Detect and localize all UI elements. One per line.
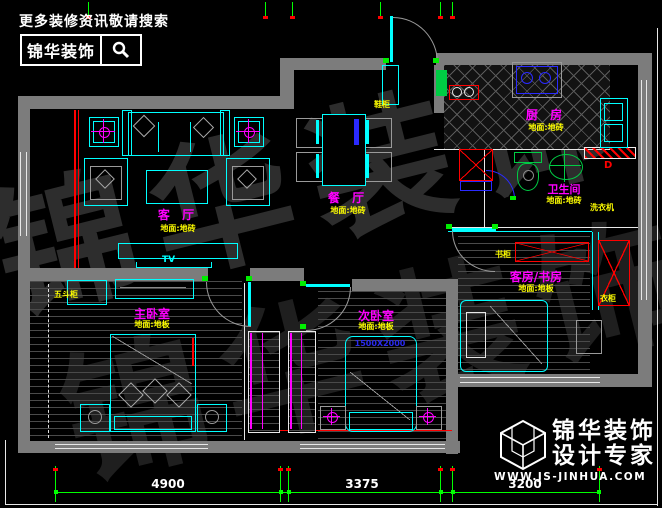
dimension-extension xyxy=(452,466,453,502)
dimension-extension xyxy=(288,466,289,502)
wash-basin xyxy=(549,154,583,180)
dining-chair-accent xyxy=(366,154,369,178)
dimension-tick-mark xyxy=(263,16,268,19)
basin-circle xyxy=(464,87,474,97)
light-crosshair-icon xyxy=(327,412,338,423)
basin-circle xyxy=(452,87,462,97)
search-banner-tagline: 更多装修资讯敬请搜索 xyxy=(19,11,169,31)
search-banner-brand: 锦华装饰 xyxy=(22,38,100,62)
brand-logo-slogan: 设计专家 xyxy=(552,444,656,468)
search-banner-box: 锦华装饰 xyxy=(20,34,142,66)
sheet-border xyxy=(5,504,658,505)
sofa-arm xyxy=(220,110,230,156)
wardrobe-hanging xyxy=(288,331,316,433)
wall xyxy=(250,268,304,281)
bed-bench xyxy=(114,416,192,430)
flue-shaft xyxy=(459,149,493,181)
basin-cross xyxy=(549,165,581,166)
window xyxy=(646,80,647,300)
sofa-arm xyxy=(122,110,132,156)
wall xyxy=(18,96,292,109)
label-washer: 洗衣机 xyxy=(590,204,614,212)
finish-label-bath: 地面:地砖 xyxy=(540,197,588,205)
wall xyxy=(446,279,458,454)
door-hinge-mark xyxy=(202,276,208,281)
dining-chair-accent xyxy=(316,120,319,144)
window xyxy=(460,377,600,378)
wall xyxy=(448,374,652,387)
tv-bracket xyxy=(136,267,212,268)
dimension-node xyxy=(439,490,443,494)
balcony-slider xyxy=(592,232,593,310)
brand-logo-website: WWW.JS-JINHUA.COM xyxy=(494,471,646,483)
curtain-line xyxy=(78,110,79,268)
sink-basin xyxy=(604,103,623,121)
sink-basin xyxy=(604,124,623,142)
dimension-node xyxy=(597,490,601,494)
finish-label-second: 地面:地板 xyxy=(348,323,404,331)
dining-chair-accent xyxy=(316,154,319,178)
hatched-wall-segment xyxy=(584,147,636,159)
tv-bracket xyxy=(211,262,212,268)
dimension-extension xyxy=(440,466,441,502)
light-crosshair-icon xyxy=(423,412,434,423)
dimension-node xyxy=(54,490,58,494)
window xyxy=(300,444,445,445)
door-hinge-mark xyxy=(433,58,439,63)
label-bed-size: 1500X2000 xyxy=(350,339,410,348)
dining-chair xyxy=(296,152,324,182)
dimension-extension xyxy=(55,466,56,502)
door-hinge-mark xyxy=(510,196,516,200)
dimension-value-2: 3375 xyxy=(332,478,392,490)
dresser-line xyxy=(120,287,186,288)
brand-logo-name: 锦华装饰 xyxy=(552,419,656,443)
room-label-living: 客 厅 xyxy=(148,209,208,221)
window xyxy=(641,80,642,300)
dimension-node xyxy=(279,490,283,494)
window xyxy=(300,448,445,449)
dimension-tick-mark xyxy=(438,16,443,19)
side-table xyxy=(576,320,602,354)
bookcase xyxy=(515,242,589,262)
bed-accent xyxy=(192,338,194,366)
room-label-master: 主卧室 xyxy=(124,308,180,320)
tv-bracket xyxy=(136,262,137,268)
door-hinge-mark xyxy=(446,224,452,229)
light-crosshair-icon xyxy=(331,408,332,425)
guest-bed-fold xyxy=(490,306,542,364)
finish-label-study: 地面:地板 xyxy=(494,285,578,293)
window xyxy=(55,448,208,449)
wall xyxy=(352,279,452,291)
wardrobe-rail xyxy=(262,333,263,429)
basin-cross xyxy=(564,150,565,182)
master-bed-fold xyxy=(112,336,192,384)
dresser xyxy=(115,279,194,299)
label-wardrobe: 衣柜 xyxy=(600,295,616,303)
curtain-line xyxy=(74,110,76,268)
toilet-drain xyxy=(523,170,534,181)
label-drain: D xyxy=(604,160,612,171)
projection-line xyxy=(48,284,49,438)
wardrobe-hanging xyxy=(248,331,280,433)
wardrobe-rail xyxy=(250,333,252,429)
table-runner xyxy=(354,119,359,145)
dimension-extension xyxy=(280,466,281,502)
door-hinge-mark xyxy=(383,58,389,63)
label-tv: TV xyxy=(162,255,175,265)
dining-chair xyxy=(296,118,324,148)
dimension-value-1: 4900 xyxy=(138,478,198,490)
dimension-tick-mark xyxy=(286,468,291,471)
light-crosshair-icon xyxy=(244,127,255,138)
light-crosshair-icon xyxy=(103,119,104,143)
window xyxy=(26,152,27,236)
finish-label-master: 地面:地板 xyxy=(124,321,180,329)
light-crosshair-icon xyxy=(99,127,110,138)
window xyxy=(460,382,600,383)
dimension-tick-mark xyxy=(450,16,455,19)
label-shoe-cabinet: 鞋柜 xyxy=(374,101,390,109)
wall xyxy=(280,58,386,70)
dimension-line xyxy=(55,492,600,493)
dining-table xyxy=(322,114,366,186)
lamp-icon xyxy=(88,410,102,424)
lamp-icon xyxy=(205,410,219,424)
dimension-tick-mark xyxy=(278,468,283,471)
second-bed-foot xyxy=(349,412,413,430)
entry-door-arc xyxy=(393,17,438,63)
fridge xyxy=(436,70,447,96)
finish-label-dining: 地面:地砖 xyxy=(318,207,378,215)
door-hinge-mark xyxy=(492,224,498,229)
sofa-divider xyxy=(158,122,159,152)
sofa-divider xyxy=(190,122,191,152)
finish-label-kitchen: 地面:地砖 xyxy=(516,124,576,132)
door-hinge-mark xyxy=(300,281,306,286)
toilet-tank xyxy=(514,152,542,163)
guest-bed-pillow xyxy=(466,312,486,358)
wardrobe-rail xyxy=(301,333,302,429)
sheet-border xyxy=(5,440,6,505)
dimension-tick-mark xyxy=(378,16,383,19)
sheet-border xyxy=(657,28,658,506)
door-hinge-mark xyxy=(246,276,252,281)
dimension-tick-mark xyxy=(450,468,455,471)
label-bookcase: 书柜 xyxy=(495,251,511,259)
search-icon xyxy=(102,40,140,60)
room-label-bath: 卫生间 xyxy=(540,184,588,195)
dimension-node xyxy=(287,490,291,494)
window xyxy=(20,152,21,236)
burner-icon xyxy=(539,72,551,84)
room-label-kitchen: 厨 房 xyxy=(516,109,576,121)
wardrobe-rail xyxy=(290,333,292,429)
door-hinge-mark xyxy=(300,324,306,329)
burner-icon xyxy=(521,72,533,84)
brand-cube-icon xyxy=(499,419,547,471)
floor-plan: 锦华装饰 锦华装饰 xyxy=(0,0,662,508)
shoe-cabinet xyxy=(382,65,399,105)
coffee-table xyxy=(146,170,208,204)
light-crosshair-icon xyxy=(248,119,249,143)
tv-cabinet xyxy=(118,243,238,259)
window xyxy=(55,444,208,445)
dining-chair-accent xyxy=(366,120,369,144)
dimension-tick-mark xyxy=(438,468,443,471)
finish-label-living: 地面:地砖 xyxy=(146,225,210,233)
counter-edge xyxy=(460,181,492,191)
dimension-tick-mark xyxy=(290,16,295,19)
room-label-study: 客房/书房 xyxy=(494,271,578,283)
label-chest: 五斗柜 xyxy=(54,291,78,299)
room-label-second: 次卧室 xyxy=(348,310,404,322)
wall xyxy=(18,441,460,453)
light-crosshair-icon xyxy=(427,408,428,425)
dimension-node xyxy=(451,490,455,494)
dimension-tick-mark xyxy=(53,468,58,471)
room-label-dining: 餐 厅 xyxy=(318,192,378,204)
